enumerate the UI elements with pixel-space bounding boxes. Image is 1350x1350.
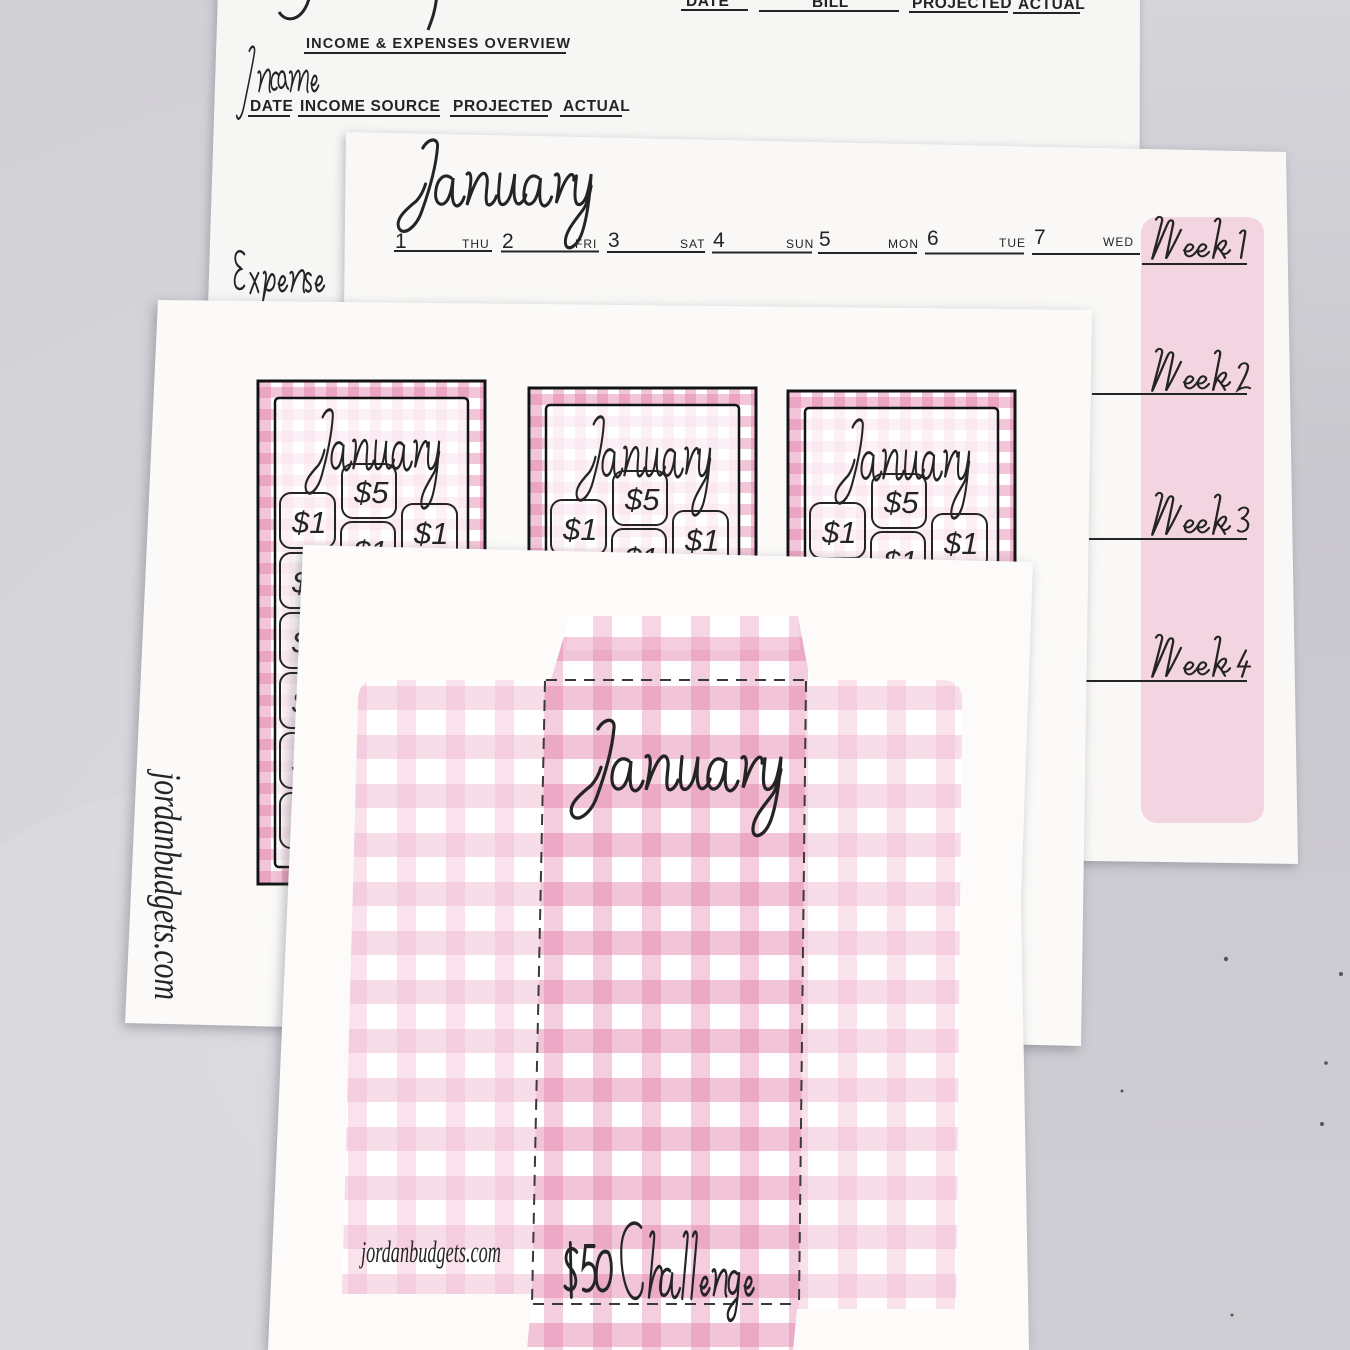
svg-text:2: 2: [502, 230, 514, 253]
svg-text:6: 6: [927, 227, 939, 250]
svg-text:INCOME SOURCE: INCOME SOURCE: [300, 98, 440, 115]
svg-text:5: 5: [819, 228, 831, 251]
svg-text:BILL: BILL: [812, 0, 849, 11]
svg-text:DATE: DATE: [250, 98, 293, 115]
svg-text:$1: $1: [413, 516, 448, 551]
svg-text:jordanbudgets.com: jordanbudgets.com: [146, 768, 188, 1000]
svg-text:SUN: SUN: [786, 237, 814, 251]
svg-text:TUE: TUE: [999, 236, 1026, 250]
svg-text:DATE: DATE: [686, 0, 729, 10]
svg-text:$5: $5: [883, 485, 919, 520]
svg-text:$5: $5: [353, 475, 389, 510]
svg-text:1: 1: [395, 230, 407, 253]
svg-text:THU: THU: [462, 237, 490, 251]
svg-text:PROJECTED: PROJECTED: [912, 0, 1012, 12]
svg-text:ACTUAL: ACTUAL: [1018, 0, 1085, 13]
svg-text:$1: $1: [943, 526, 978, 561]
svg-text:PROJECTED: PROJECTED: [453, 98, 553, 115]
svg-text:MON: MON: [888, 237, 919, 251]
svg-text:SAT: SAT: [680, 237, 705, 251]
svg-text:jordanbudgets.com: jordanbudgets.com: [359, 1234, 501, 1269]
svg-text:7: 7: [1034, 226, 1046, 249]
svg-text:$5: $5: [624, 482, 660, 517]
svg-text:$1: $1: [684, 523, 719, 558]
svg-text:WED: WED: [1103, 235, 1134, 249]
svg-text:4: 4: [713, 229, 725, 252]
svg-text:$1: $1: [562, 512, 597, 547]
svg-text:3: 3: [608, 229, 620, 252]
svg-text:$1: $1: [821, 515, 856, 550]
svg-text:$1: $1: [291, 505, 326, 540]
svg-text:FRI: FRI: [575, 237, 597, 251]
svg-text:INCOME & EXPENSES OVERVIEW: INCOME & EXPENSES OVERVIEW: [306, 36, 571, 52]
svg-text:ACTUAL: ACTUAL: [563, 98, 630, 115]
